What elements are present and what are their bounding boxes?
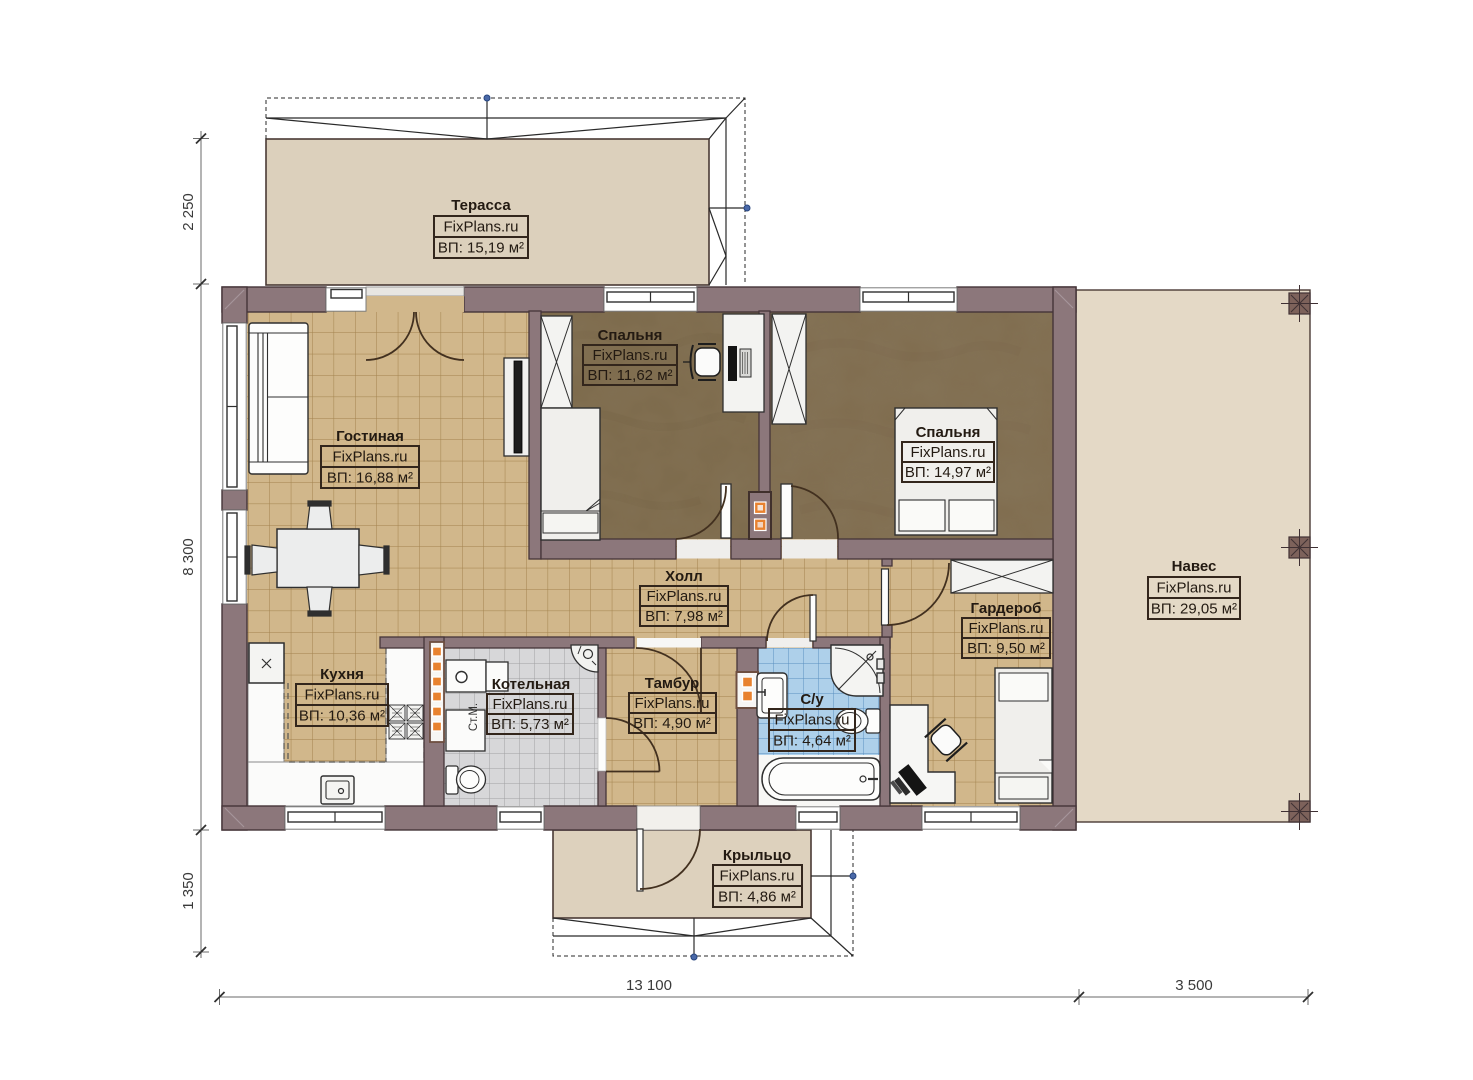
svg-text:ВП: 10,36 м²: ВП: 10,36 м² xyxy=(299,708,385,725)
svg-text:ВП: 7,98 м²: ВП: 7,98 м² xyxy=(645,608,723,625)
svg-text:Гостиная: Гостиная xyxy=(336,428,404,445)
svg-text:FixPlans.ru: FixPlans.ru xyxy=(646,588,721,605)
svg-text:Навес: Навес xyxy=(1172,558,1217,575)
svg-text:Тамбур: Тамбур xyxy=(645,675,699,692)
svg-text:Кухня: Кухня xyxy=(320,666,364,683)
svg-text:FixPlans.ru: FixPlans.ru xyxy=(968,620,1043,637)
svg-text:ВП: 15,19 м²: ВП: 15,19 м² xyxy=(438,240,524,257)
svg-text:Спальня: Спальня xyxy=(916,424,981,441)
svg-text:Холл: Холл xyxy=(665,568,703,585)
svg-text:FixPlans.ru: FixPlans.ru xyxy=(1156,580,1231,597)
svg-text:FixPlans.ru: FixPlans.ru xyxy=(634,695,709,712)
svg-text:1 350: 1 350 xyxy=(180,872,197,910)
svg-text:ВП: 4,64 м²: ВП: 4,64 м² xyxy=(773,733,851,750)
svg-text:Спальня: Спальня xyxy=(598,327,663,344)
svg-text:ВП: 5,73 м²: ВП: 5,73 м² xyxy=(491,716,569,733)
svg-text:ВП: 11,62 м²: ВП: 11,62 м² xyxy=(587,367,672,384)
svg-text:Крыльцо: Крыльцо xyxy=(723,847,791,864)
svg-text:Гардероб: Гардероб xyxy=(971,600,1042,617)
svg-text:Терасса: Терасса xyxy=(451,197,511,214)
svg-text:8 300: 8 300 xyxy=(180,538,197,576)
svg-text:3 500: 3 500 xyxy=(1175,977,1213,994)
svg-text:Ст.М.: Ст.М. xyxy=(468,703,480,731)
svg-text:FixPlans.ru: FixPlans.ru xyxy=(443,219,518,236)
svg-text:FixPlans.ru: FixPlans.ru xyxy=(910,444,985,461)
svg-text:ВП: 4,86 м²: ВП: 4,86 м² xyxy=(718,889,796,906)
svg-text:FixPlans.ru: FixPlans.ru xyxy=(332,449,407,466)
svg-text:ВП: 4,90 м²: ВП: 4,90 м² xyxy=(633,715,711,732)
svg-text:2 250: 2 250 xyxy=(180,193,197,231)
svg-text:FixPlans.ru: FixPlans.ru xyxy=(719,868,794,885)
svg-text:ВП: 9,50 м²: ВП: 9,50 м² xyxy=(967,640,1045,657)
svg-text:FixPlans.ru: FixPlans.ru xyxy=(304,687,379,704)
svg-text:С/у: С/у xyxy=(800,691,824,708)
svg-text:Котельная: Котельная xyxy=(492,676,571,693)
svg-text:ВП: 14,97 м²: ВП: 14,97 м² xyxy=(905,464,991,481)
svg-text:FixPlans.ru: FixPlans.ru xyxy=(492,696,567,713)
svg-text:FixPlans.ru: FixPlans.ru xyxy=(592,347,667,364)
svg-text:ВП: 29,05 м²: ВП: 29,05 м² xyxy=(1151,601,1237,618)
svg-text:13 100: 13 100 xyxy=(626,977,672,994)
svg-text:FixPlans.ru: FixPlans.ru xyxy=(774,712,849,729)
svg-text:ВП: 16,88 м²: ВП: 16,88 м² xyxy=(327,470,413,487)
